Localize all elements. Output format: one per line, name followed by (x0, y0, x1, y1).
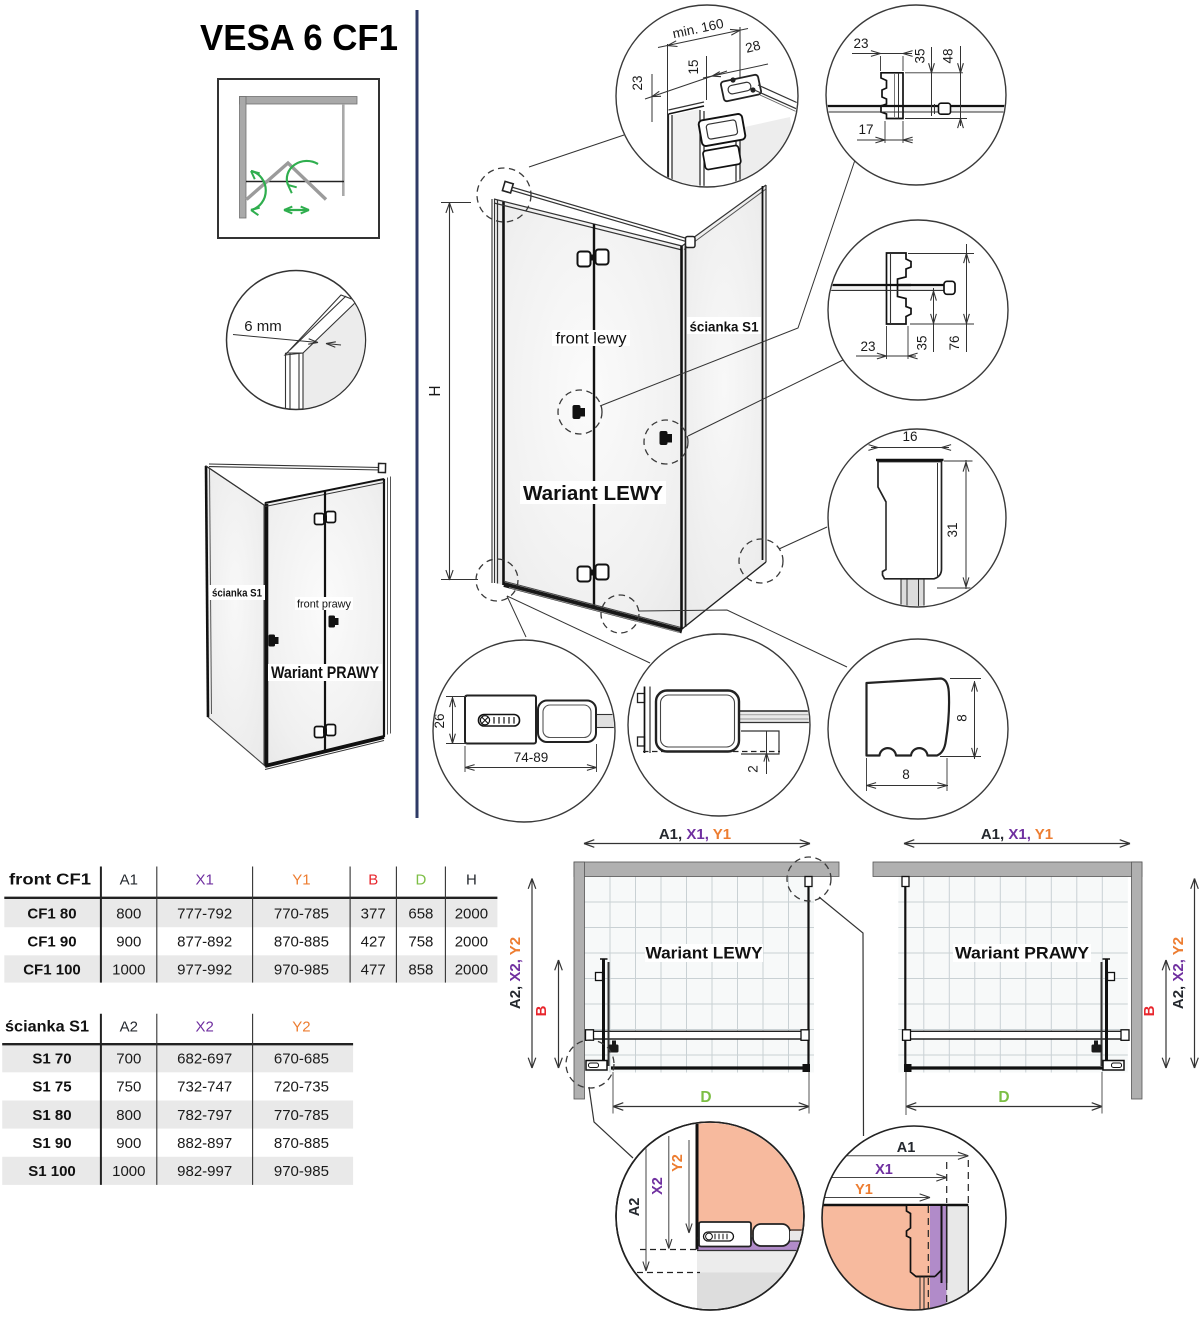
svg-text:Y2: Y2 (292, 1019, 310, 1036)
svg-text:front prawy: front prawy (297, 599, 351, 611)
svg-text:8: 8 (955, 714, 970, 722)
svg-text:H: H (427, 385, 444, 396)
svg-text:970-985: 970-985 (274, 1163, 329, 1180)
svg-text:870-885: 870-885 (274, 934, 329, 951)
svg-text:15: 15 (686, 59, 701, 74)
svg-text:858: 858 (408, 962, 433, 979)
svg-text:982-997: 982-997 (177, 1163, 232, 1180)
svg-text:S1 75: S1 75 (32, 1079, 71, 1096)
svg-text:2000: 2000 (455, 962, 488, 979)
svg-text:A2, X2, Y2: A2, X2, Y2 (507, 937, 524, 1009)
svg-text:2000: 2000 (455, 905, 488, 922)
svg-text:VESA 6 CF1: VESA 6 CF1 (200, 17, 398, 58)
svg-text:770-785: 770-785 (274, 1107, 329, 1124)
svg-text:X2: X2 (650, 1177, 666, 1195)
svg-text:A1, X1, Y1: A1, X1, Y1 (659, 826, 731, 843)
svg-text:732-747: 732-747 (177, 1079, 232, 1096)
svg-text:48: 48 (941, 48, 956, 63)
svg-text:2000: 2000 (455, 934, 488, 951)
svg-text:Y2: Y2 (670, 1154, 686, 1172)
svg-text:X1: X1 (196, 872, 214, 889)
svg-text:Y1: Y1 (292, 872, 310, 889)
svg-text:Wariant LEWY: Wariant LEWY (523, 482, 663, 505)
svg-text:6 mm: 6 mm (244, 318, 282, 335)
svg-text:X1: X1 (875, 1162, 893, 1178)
svg-text:A1, X1, Y1: A1, X1, Y1 (981, 826, 1053, 843)
svg-text:750: 750 (116, 1079, 141, 1096)
svg-text:877-892: 877-892 (177, 934, 232, 951)
svg-text:A2, X2, Y2: A2, X2, Y2 (1170, 937, 1187, 1009)
svg-text:S1 70: S1 70 (32, 1051, 71, 1068)
svg-text:23: 23 (853, 36, 868, 51)
svg-text:977-992: 977-992 (177, 962, 232, 979)
svg-text:CF1 90: CF1 90 (27, 934, 76, 951)
svg-text:900: 900 (116, 1135, 141, 1152)
svg-text:B: B (1141, 1005, 1158, 1016)
svg-text:17: 17 (858, 122, 873, 137)
svg-text:Wariant PRAWY: Wariant PRAWY (271, 664, 379, 682)
svg-text:882-897: 882-897 (177, 1135, 232, 1152)
svg-text:front CF1: front CF1 (9, 872, 91, 889)
svg-text:23: 23 (630, 75, 645, 90)
svg-text:Wariant LEWY: Wariant LEWY (646, 945, 763, 963)
svg-text:758: 758 (408, 934, 433, 951)
svg-text:76: 76 (947, 335, 962, 350)
svg-text:31: 31 (945, 522, 960, 537)
svg-text:427: 427 (361, 934, 386, 951)
svg-text:Y1: Y1 (855, 1182, 873, 1198)
svg-text:8: 8 (902, 767, 910, 782)
svg-text:1000: 1000 (112, 962, 145, 979)
svg-text:16: 16 (902, 429, 917, 444)
svg-text:D: D (998, 1089, 1009, 1106)
svg-text:670-685: 670-685 (274, 1051, 329, 1068)
svg-text:782-797: 782-797 (177, 1107, 232, 1124)
svg-text:477: 477 (361, 962, 386, 979)
svg-text:S1 100: S1 100 (28, 1163, 76, 1180)
svg-text:B: B (533, 1005, 550, 1016)
svg-text:777-792: 777-792 (177, 905, 232, 922)
svg-text:35: 35 (913, 48, 928, 63)
svg-text:ścianka S1: ścianka S1 (212, 588, 262, 600)
svg-text:770-785: 770-785 (274, 905, 329, 922)
svg-text:682-697: 682-697 (177, 1051, 232, 1068)
svg-text:658: 658 (408, 905, 433, 922)
svg-text:ścianka S1: ścianka S1 (5, 1019, 89, 1036)
svg-text:74-89: 74-89 (514, 750, 549, 765)
svg-text:870-885: 870-885 (274, 1135, 329, 1152)
svg-text:A2: A2 (120, 1019, 138, 1036)
svg-text:900: 900 (116, 934, 141, 951)
svg-text:377: 377 (361, 905, 386, 922)
svg-text:CF1 80: CF1 80 (27, 905, 76, 922)
svg-text:720-735: 720-735 (274, 1079, 329, 1096)
svg-text:800: 800 (116, 1107, 141, 1124)
svg-text:S1 80: S1 80 (32, 1107, 71, 1124)
svg-text:front lewy: front lewy (556, 331, 627, 348)
svg-text:35: 35 (915, 335, 930, 350)
svg-text:D: D (700, 1089, 711, 1106)
svg-text:Wariant PRAWY: Wariant PRAWY (955, 945, 1089, 963)
svg-text:800: 800 (116, 905, 141, 922)
svg-text:2: 2 (746, 765, 761, 773)
svg-text:B: B (368, 872, 378, 889)
svg-text:A1: A1 (897, 1140, 916, 1156)
svg-text:970-985: 970-985 (274, 962, 329, 979)
svg-text:D: D (415, 872, 426, 889)
svg-text:23: 23 (860, 339, 875, 354)
svg-text:A1: A1 (120, 872, 138, 889)
svg-text:A2: A2 (627, 1198, 643, 1217)
svg-text:1000: 1000 (112, 1163, 145, 1180)
svg-text:CF1 100: CF1 100 (23, 962, 81, 979)
svg-text:700: 700 (116, 1051, 141, 1068)
svg-text:S1 90: S1 90 (32, 1135, 71, 1152)
svg-text:X2: X2 (196, 1019, 214, 1036)
svg-text:H: H (466, 872, 477, 889)
svg-text:ścianka S1: ścianka S1 (690, 319, 759, 335)
